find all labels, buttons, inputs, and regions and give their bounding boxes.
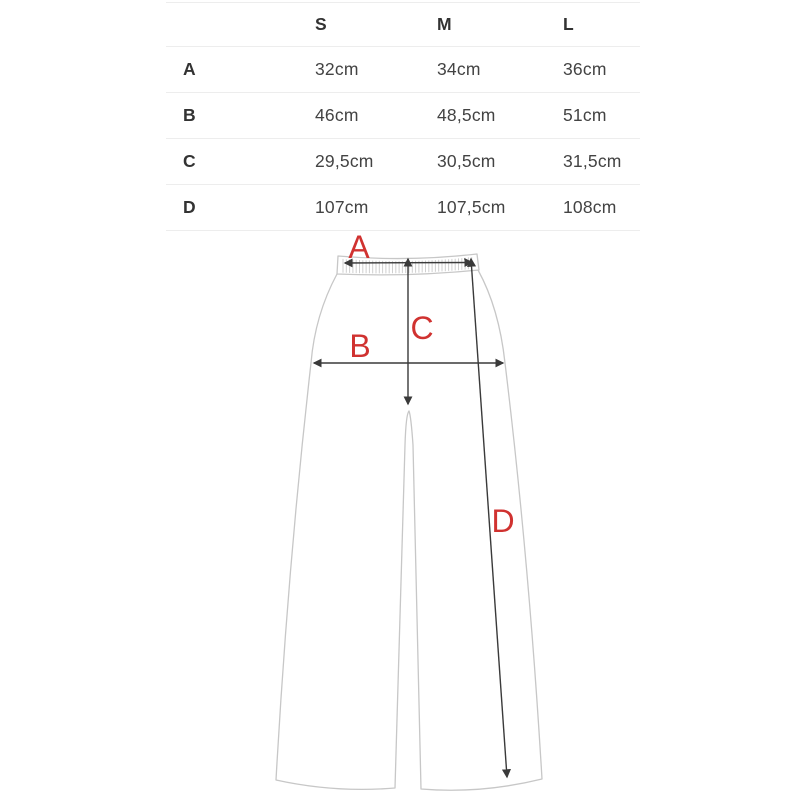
label-b: B [349, 328, 370, 364]
label-a: A [348, 229, 370, 265]
size-guide-page: S M L A 32cm 34cm 36cm B 46cm 48,5cm 51c… [0, 0, 800, 800]
pants-diagram: A B C D [0, 0, 800, 800]
label-c: C [410, 310, 433, 346]
label-d: D [491, 503, 514, 539]
